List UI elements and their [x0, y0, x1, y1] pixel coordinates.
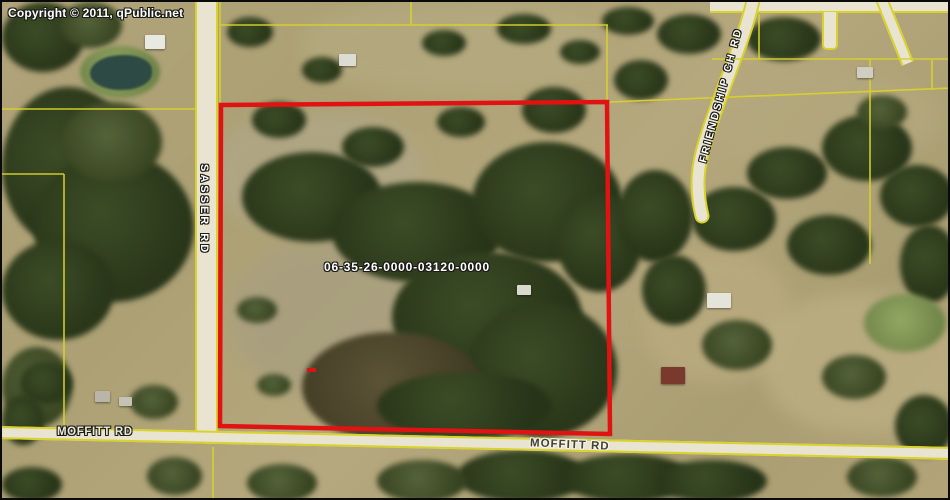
- copyright-text: Copyright © 2011, qPublic.net: [8, 6, 183, 20]
- building: [119, 397, 132, 406]
- tree-cluster: [614, 60, 668, 100]
- tree-cluster: [2, 240, 114, 340]
- parcel-id-label[interactable]: 06-35-26-0000-03120-0000: [324, 260, 490, 274]
- building: [95, 391, 110, 402]
- tree-cluster: [617, 170, 693, 262]
- tree-cluster: [560, 40, 600, 64]
- tree-cluster: [522, 87, 586, 133]
- tree-cluster: [237, 297, 277, 323]
- tree-cluster: [642, 255, 706, 325]
- road-label-sasser: SASSER RD: [198, 164, 210, 255]
- tree-cluster: [692, 187, 776, 251]
- building: [145, 35, 165, 49]
- pond: [90, 55, 152, 90]
- tree-cluster: [857, 95, 907, 129]
- building: [857, 67, 873, 78]
- tree-cluster: [787, 215, 871, 275]
- building: [707, 293, 731, 308]
- tree-cluster: [247, 464, 317, 500]
- building-red-roof: [661, 367, 685, 384]
- tree-cluster: [227, 17, 273, 47]
- tree-cluster: [657, 14, 721, 54]
- tree-cluster: [2, 467, 62, 500]
- tree-cluster: [880, 165, 950, 227]
- road-stub: [822, 12, 838, 50]
- tree-cluster: [62, 102, 162, 182]
- tree-cluster: [377, 460, 467, 500]
- tree-cluster: [847, 457, 917, 497]
- tree-cluster: [747, 17, 821, 61]
- forest: [377, 372, 552, 440]
- tree-cluster: [702, 320, 772, 370]
- tree-cluster: [497, 14, 551, 44]
- tree-cluster: [302, 57, 342, 83]
- tree-cluster: [147, 457, 202, 495]
- tree-cluster: [900, 225, 950, 303]
- tree-cluster: [864, 294, 946, 352]
- road-label-moffitt-west: MOFFITT RD: [57, 426, 133, 438]
- tree-cluster: [422, 30, 466, 56]
- tree-cluster: [822, 355, 886, 399]
- building: [517, 285, 531, 295]
- tree-cluster: [437, 107, 485, 137]
- tree-cluster: [257, 374, 291, 396]
- tree-cluster: [747, 147, 827, 199]
- tree-cluster: [130, 385, 178, 419]
- building: [339, 54, 356, 66]
- tree-cluster: [252, 102, 306, 138]
- tree-cluster: [657, 460, 767, 500]
- tree-cluster: [602, 7, 654, 35]
- aerial-map-canvas[interactable]: Copyright © 2011, qPublic.net SASSER RD …: [0, 0, 950, 500]
